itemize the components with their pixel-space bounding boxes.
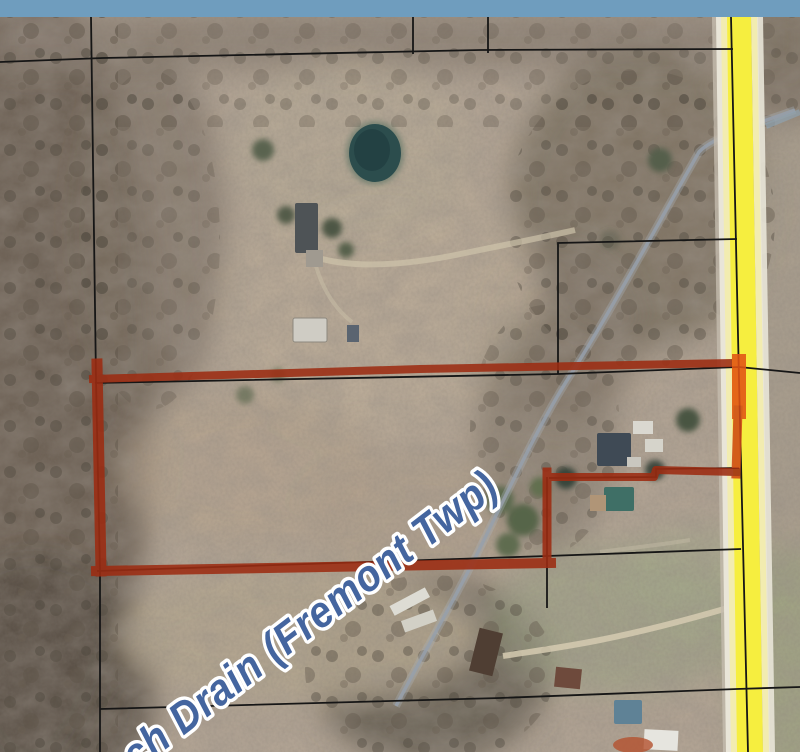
north-house-wing — [306, 250, 323, 267]
east-shed-2 — [645, 439, 663, 452]
highlight-west-edge — [97, 364, 101, 571]
map-viewport[interactable]: ch Drain (Fremont Twp) — [0, 0, 800, 752]
east-shed-3 — [627, 457, 641, 467]
pond — [346, 121, 404, 185]
east-house — [597, 433, 631, 466]
north-shed — [293, 318, 327, 342]
south-blue-house — [614, 700, 642, 724]
highlight-east-edge — [736, 410, 738, 474]
teal-house-wing — [590, 495, 606, 511]
south-shed — [554, 667, 582, 690]
north-house — [295, 203, 318, 253]
vehicle — [347, 325, 359, 342]
teal-roof-house — [604, 487, 634, 511]
east-shed-1 — [633, 421, 653, 434]
top-bar — [0, 0, 800, 17]
